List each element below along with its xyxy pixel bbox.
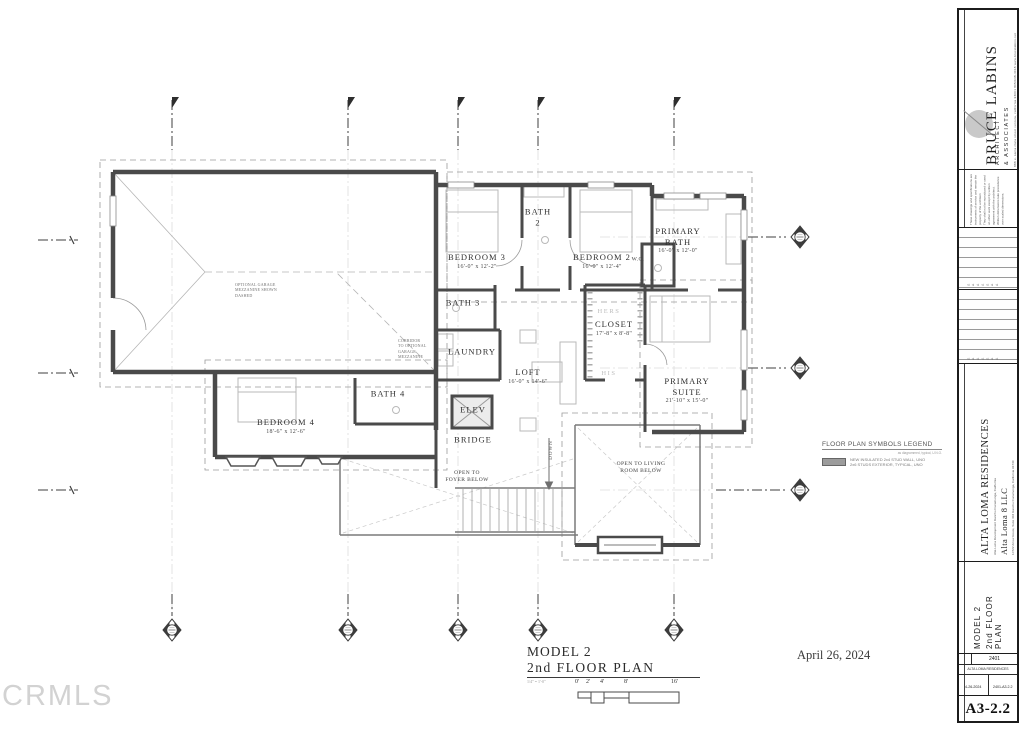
- scale-tick-16: 16': [671, 679, 678, 685]
- room-label-bedroom-2: BEDROOM 2 16'-0" x 12'-4": [573, 252, 631, 270]
- room-name: BEDROOM 3: [448, 252, 506, 263]
- room-label-primary-bath: PRIMARY BATH 16'-0" x 12'-0": [655, 226, 700, 254]
- room-label-bedroom-4: BEDROOM 4 18'-6" x 12'-6": [257, 417, 315, 435]
- open-to-below-dashes: [343, 428, 697, 542]
- section-markers-right: [716, 226, 809, 501]
- roof-diagonals: [113, 172, 436, 372]
- title-block-project-section: ALTA LOMA RESIDENCES Alta Loma Developme…: [959, 364, 1017, 562]
- legend-note: as diagrammed, typical, U.N.O.: [822, 451, 942, 455]
- firm-subtitle: ARCHITECT & ASSOCIATES: [994, 14, 1012, 165]
- label-text: OPEN TO FOYER BELOW: [445, 470, 488, 484]
- room-dims: 16'-0" x 12'-2": [448, 264, 506, 270]
- room-name: PRIMARY BATH: [655, 226, 700, 247]
- date-file-row: 4-26-2024 2401-A3.2.2: [959, 675, 1017, 695]
- scale-tick-2: 2': [586, 679, 590, 685]
- room-dims: 21'-10" x 15'-0": [664, 398, 709, 404]
- wall-swatch-icon: [822, 458, 846, 466]
- scale-tick-0: 0': [575, 679, 579, 685]
- room-label-laundry: LAUNDRY: [448, 347, 496, 358]
- room-label-primary-suite: PRIMARY SUITE 21'-10" x 15'-0": [664, 376, 709, 404]
- room-label-bath-2: BATH 2: [525, 206, 551, 227]
- label-text: OPEN TO LIVING ROOM BELOW: [617, 461, 666, 475]
- room-name: BATH 3: [446, 298, 481, 309]
- room-label-wc: W.C.: [632, 257, 645, 264]
- room-label-his: HIS: [601, 370, 616, 378]
- room-label-bath-4: BATH 4: [371, 389, 406, 400]
- revision-delta-icons: ◃◃◃◃◃◃◃: [967, 282, 1000, 288]
- plot-date: April 26, 2024: [797, 648, 870, 663]
- room-dims: 16'-0" x 14'-6": [508, 379, 548, 385]
- label-down: DOWN: [549, 440, 555, 460]
- room-dims: 18'-6" x 12'-6": [257, 429, 315, 435]
- title-block-firm-section: BRUCE LABINS ARCHITECT & ASSOCIATES 888 …: [959, 10, 1017, 170]
- room-name: CLOSET: [595, 319, 633, 330]
- job-number: 2401: [972, 654, 1017, 664]
- room-name: PRIMARY SUITE: [664, 376, 709, 397]
- title-block-info-table: 2401 ALTA LOMA RESIDENCES 4-26-2024 2401…: [959, 654, 1017, 696]
- revision-block-1: ◃◃◃◃◃◃◃: [959, 228, 1017, 290]
- date-value: 4-26-2024: [959, 675, 989, 695]
- sheet-title-line1: MODEL 2: [973, 566, 982, 649]
- room-name: HIS: [601, 370, 616, 378]
- title-block: BRUCE LABINS ARCHITECT & ASSOCIATES 888 …: [957, 8, 1019, 723]
- client-address: 10722 Arrow Route, Suite 304 Rancho Cuca…: [1011, 370, 1015, 555]
- roof-overhang-dashed: [100, 160, 752, 560]
- job-number-row: 2401: [959, 654, 1017, 665]
- sheet-number: A3-2.2: [965, 701, 1010, 718]
- note-text: CORRIDOR TO OPTIONAL GARAGE MEZZANINE: [398, 338, 426, 360]
- room-label-elev: ELEV: [460, 405, 486, 416]
- revision-delta-icons: ◃◃◃◃◃◃◃: [967, 356, 1000, 362]
- note-optional-garage: OPTIONAL GARAGE MEZZANINE SHOWN DASHED: [235, 282, 277, 298]
- room-name: BATH 2: [525, 206, 551, 227]
- room-label-closet: CLOSET 17'-8" x 8'-8": [595, 319, 633, 337]
- floor-plan-symbols-legend: FLOOR PLAN SYMBOLS LEGEND as diagrammed,…: [822, 441, 942, 468]
- room-label-hers: HERS: [597, 308, 620, 316]
- label-open-to-living: OPEN TO LIVING ROOM BELOW: [617, 461, 666, 475]
- room-name: BEDROOM 4: [257, 417, 315, 428]
- revision-rows: [959, 228, 1017, 289]
- revision-rows: [959, 290, 1017, 363]
- job-label-cell: [959, 654, 972, 664]
- scale-tick-8: 8': [624, 679, 628, 685]
- note-text: OPTIONAL GARAGE MEZZANINE SHOWN DASHED: [235, 282, 277, 298]
- legend-item-desc: NEW INSULATED 2x4 STUD WALL, UNO 2x6 STU…: [850, 457, 925, 468]
- room-name: HERS: [597, 308, 620, 316]
- project-name: ALTA LOMA RESIDENCES: [980, 370, 991, 555]
- room-name: ELEV: [460, 405, 486, 416]
- stair-risers: [463, 488, 562, 532]
- label-text: DOWN: [549, 440, 555, 460]
- room-label-bath-3: BATH 3: [446, 298, 481, 309]
- room-label-bridge: BRIDGE: [454, 435, 492, 446]
- room-name: W.C.: [632, 257, 645, 264]
- title-block-disclaimer-section: These drawings and specifications are in…: [959, 170, 1017, 228]
- note-corridor: CORRIDOR TO OPTIONAL GARAGE MEZZANINE: [398, 338, 426, 360]
- room-name: LOFT: [508, 367, 548, 378]
- revision-block-2: ◃◃◃◃◃◃◃: [959, 290, 1017, 364]
- title-block-sheet-title-section: MODEL 2 2nd FLOOR PLAN: [959, 562, 1017, 654]
- thin-walls: [340, 425, 700, 545]
- scale-tick-4: 4': [600, 679, 604, 685]
- file-value: 2401-A3.2.2: [989, 675, 1018, 695]
- room-dims: 16'-0" x 12'-4": [573, 264, 631, 270]
- legend-item: NEW INSULATED 2x4 STUD WALL, UNO 2x6 STU…: [822, 457, 942, 468]
- drawing-title-line2: 2nd FLOOR PLAN: [527, 660, 700, 678]
- section-markers-bottom: [163, 594, 683, 641]
- room-name: LAUNDRY: [448, 347, 496, 358]
- room-label-bedroom-3: BEDROOM 3 16'-0" x 12'-2": [448, 252, 506, 270]
- firm-address: 888 e. santa clara street ventura, calif…: [1013, 12, 1017, 167]
- drawing-title-line1: MODEL 2: [527, 644, 700, 660]
- client-name: Alta Loma 8 LLC: [999, 370, 1009, 555]
- walls: [113, 172, 744, 553]
- floor-plan-drawing: [0, 0, 1024, 731]
- bay-windows: [226, 457, 342, 466]
- room-dims: 17'-8" x 8'-8": [595, 331, 633, 337]
- disclaimer-text: These drawings and specifications are in…: [969, 172, 1005, 225]
- legend-title: FLOOR PLAN SYMBOLS LEGEND: [822, 441, 942, 450]
- room-name: BEDROOM 2: [573, 252, 631, 263]
- room-dims: 16'-0" x 12'-0": [655, 248, 700, 254]
- project-subtitle: Alta Loma Development Rancho Cucamonga, …: [993, 370, 997, 555]
- title-block-sheet-number-section: A3-2.2: [959, 696, 1017, 723]
- section-markers-top: [172, 97, 681, 150]
- room-label-loft: LOFT 16'-0" x 14'-6": [508, 367, 548, 385]
- section-ticks-left: [38, 236, 78, 494]
- sheet-title-line2: 2nd FLOOR PLAN: [985, 566, 1003, 649]
- room-name: BRIDGE: [454, 435, 492, 446]
- crmls-watermark: CRMLS: [2, 680, 114, 713]
- architectural-sheet: { "watermark": "CRMLS", "date_note": "Ap…: [0, 0, 1024, 731]
- label-open-to-foyer: OPEN TO FOYER BELOW: [445, 470, 488, 484]
- scale-bar: [578, 692, 679, 703]
- room-name: BATH 4: [371, 389, 406, 400]
- project-short-row: ALTA LOMA RESIDENCES: [959, 665, 1017, 675]
- drawing-title: MODEL 2 2nd FLOOR PLAN 1/4" = 1'-0": [527, 644, 700, 684]
